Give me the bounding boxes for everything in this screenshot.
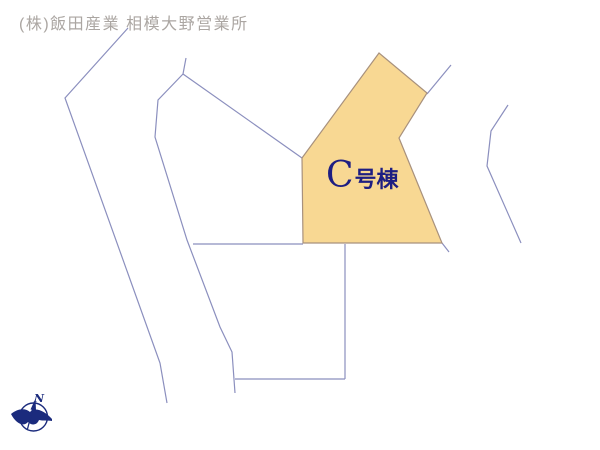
boundary-lot-corner-tail xyxy=(442,243,449,252)
boundary-east-boundary xyxy=(487,105,521,243)
plot-map-canvas: N (株)飯田産業 相模大野営業所 C号棟 xyxy=(0,0,600,450)
lot-map-drawing: N xyxy=(0,0,600,450)
lot-suffix: 号棟 xyxy=(355,169,399,191)
boundary-center-west-boundary xyxy=(155,58,235,393)
boundary-road-edge xyxy=(183,74,302,158)
lot-c-label: C号棟 xyxy=(326,158,399,194)
compass-icon: N xyxy=(11,392,52,431)
boundary-west-boundary xyxy=(65,28,167,403)
lot-letter: C xyxy=(326,158,354,194)
boundary-lines xyxy=(65,28,521,403)
compass-north-label: N xyxy=(33,392,45,405)
boundary-north-stub xyxy=(427,65,451,94)
company-watermark: (株)飯田産業 相模大野営業所 xyxy=(19,10,249,34)
lot-c-polygon xyxy=(302,53,442,243)
